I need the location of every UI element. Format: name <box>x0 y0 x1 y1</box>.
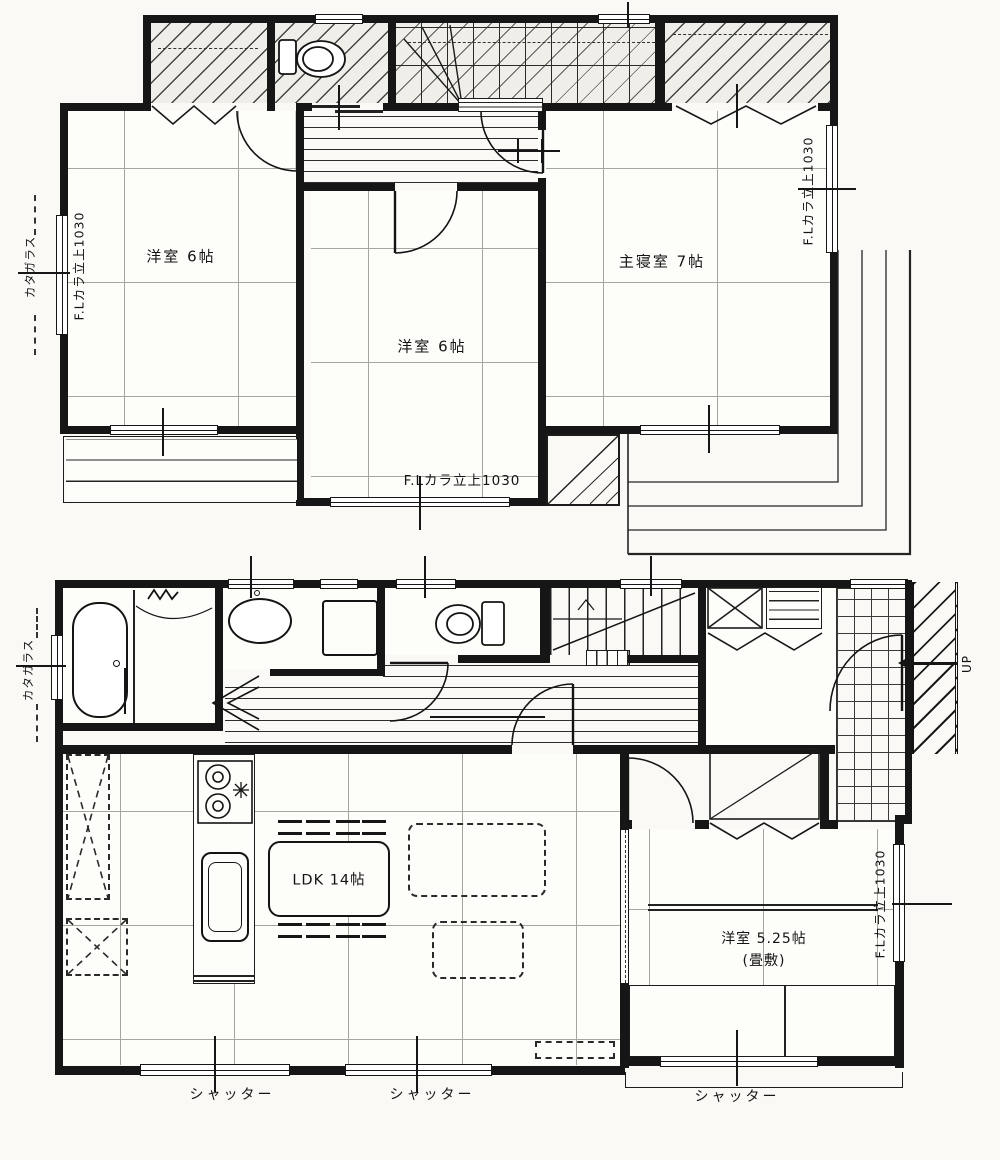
shoe-cabinet-x <box>707 587 763 629</box>
wall <box>818 1057 904 1066</box>
bathtub-icon <box>72 602 128 718</box>
roof-corner-hatch <box>546 434 620 506</box>
wall <box>698 580 706 745</box>
balcony-left-strip <box>63 436 300 503</box>
wall <box>895 822 904 844</box>
chair <box>336 923 360 938</box>
wall <box>457 183 545 191</box>
wall <box>303 183 395 191</box>
wall <box>290 1066 345 1075</box>
chair <box>362 923 386 938</box>
entry-arrow-head <box>898 657 909 669</box>
shower-curve <box>134 596 214 632</box>
window <box>228 579 294 589</box>
up-label: UP <box>960 655 974 673</box>
dimension-tick <box>708 405 710 453</box>
chair <box>306 820 330 835</box>
sill-annotation: F.Lカラ立上1030 <box>870 850 889 959</box>
wall <box>55 745 512 754</box>
stair-fan-lines <box>402 25 478 107</box>
stair-treads <box>586 650 630 666</box>
wall <box>60 103 150 111</box>
wall <box>60 103 68 215</box>
closet-a <box>151 23 267 103</box>
wall <box>267 15 275 111</box>
washbasin-tap <box>254 590 260 596</box>
glass-annotation-line <box>36 704 38 742</box>
bifold-door-icon <box>151 103 237 127</box>
chair <box>278 820 302 835</box>
dimension-tick <box>424 556 426 598</box>
dimension-tick <box>124 668 126 714</box>
sliding-door <box>335 110 383 113</box>
wall <box>55 1066 140 1075</box>
wall <box>628 655 706 663</box>
entry-arrow-line <box>908 662 958 665</box>
hanger-pipe <box>158 48 258 49</box>
glass-annotation-line <box>36 608 38 638</box>
wall <box>55 723 223 731</box>
hanger-pipe <box>673 34 828 35</box>
engawa <box>629 985 895 1057</box>
dimension-tick <box>338 85 340 130</box>
door-arc-ldk <box>512 684 573 745</box>
window <box>396 579 456 589</box>
sliding-door <box>312 105 360 108</box>
floorplan-canvas: 洋室 6帖 洋室 6帖 主寝室 7帖 F.Lカラ立上1030 カタガラス F.L… <box>0 0 1000 1160</box>
room-label: 洋室 6帖 <box>397 336 466 357</box>
sofa-spot <box>432 921 524 979</box>
drain-dot <box>113 660 120 667</box>
stair-treads <box>458 98 543 112</box>
bifold-door-icon <box>709 820 820 842</box>
sill-annotation: F.Lカラ立上1030 <box>798 137 817 246</box>
folding-door-washroom <box>205 674 263 732</box>
door-arc <box>395 191 457 253</box>
door-arc-toilet <box>390 663 448 721</box>
room-label: LDK 14帖 <box>292 869 365 890</box>
dimension-tick <box>736 1030 738 1086</box>
sill-annotation: F.Lカラ立上1030 <box>69 212 88 321</box>
wall <box>55 580 63 635</box>
wall <box>895 962 904 1068</box>
wall <box>143 15 151 111</box>
tatami-seam <box>648 904 878 906</box>
wall <box>492 1066 625 1075</box>
dimension-tick <box>892 903 952 905</box>
wall <box>458 655 550 663</box>
wall <box>60 426 110 434</box>
entrance-porch <box>912 582 958 754</box>
bifold-door-icon <box>675 103 817 127</box>
glass-annotation-line <box>34 195 36 235</box>
glass-annotation: カタガラス <box>22 236 38 298</box>
wall <box>270 669 385 676</box>
shoe-shelf <box>766 587 822 629</box>
shutter-label: シャッター <box>190 1084 275 1104</box>
window <box>51 635 63 700</box>
dimension-tick <box>627 2 629 28</box>
window <box>850 579 908 589</box>
dimension-tick <box>736 84 738 128</box>
closet-under-stairs <box>709 748 820 820</box>
window <box>598 14 650 24</box>
staircase <box>550 588 698 655</box>
balcony-lines <box>622 250 914 560</box>
wall <box>303 498 330 506</box>
wall <box>543 103 672 111</box>
tv-board-spot <box>535 1041 615 1059</box>
window <box>315 14 363 24</box>
room-label-note: (畳敷) <box>743 950 786 970</box>
wall <box>60 335 68 434</box>
wall <box>695 820 709 829</box>
wall <box>218 426 303 434</box>
washing-machine <box>322 600 378 656</box>
pantry-spot <box>66 754 110 900</box>
glass-annotation-line <box>34 315 36 355</box>
dimension-tick <box>650 556 652 596</box>
toilet-icon-2f <box>276 28 350 78</box>
sofa-spot <box>408 823 546 897</box>
chair <box>278 923 302 938</box>
bifold-door-icon <box>707 630 823 654</box>
shutter-label: シャッター <box>390 1084 475 1104</box>
wall <box>905 580 912 824</box>
wall <box>620 983 629 1068</box>
wall <box>55 700 63 1075</box>
shutter-label: シャッター <box>695 1086 780 1106</box>
wall <box>540 580 550 662</box>
wall <box>820 745 829 829</box>
room-label: 洋室 6帖 <box>146 246 215 267</box>
washbasin-icon <box>228 598 292 644</box>
window <box>110 425 218 435</box>
window <box>56 215 68 335</box>
chair <box>336 820 360 835</box>
wall <box>383 103 462 111</box>
sill-annotation: F.Lカラ立上1030 <box>404 469 521 489</box>
toilet-icon-1f <box>432 598 510 648</box>
dimension-tick <box>162 408 164 456</box>
wall <box>573 745 623 754</box>
chair <box>306 923 330 938</box>
window <box>345 1064 492 1076</box>
room-label: 主寝室 7帖 <box>619 251 705 272</box>
wall <box>830 15 838 125</box>
door-arc-entrance <box>830 635 902 711</box>
room-label: 洋室 5.25帖 <box>721 928 807 948</box>
refrigerator-spot <box>66 918 128 976</box>
window <box>320 579 358 589</box>
wall <box>143 15 838 23</box>
door-arc-tatami <box>628 758 693 823</box>
glass-annotation: カタガラス <box>20 639 36 701</box>
counter-edge <box>193 980 255 982</box>
chair <box>362 820 386 835</box>
closet-b <box>665 23 830 103</box>
door-arc <box>237 111 297 171</box>
door-arc <box>481 111 543 173</box>
dimension-tick <box>250 556 252 598</box>
counter-edge <box>193 975 255 977</box>
wall <box>377 580 385 676</box>
wall <box>655 15 665 111</box>
dimension-tick <box>430 716 545 718</box>
sliding-door <box>620 830 629 983</box>
tatami-seam <box>648 909 878 911</box>
wall <box>510 498 546 506</box>
stove-icon <box>197 760 253 824</box>
wall <box>388 15 396 111</box>
sink-icon <box>201 852 249 942</box>
wall <box>620 1057 660 1066</box>
